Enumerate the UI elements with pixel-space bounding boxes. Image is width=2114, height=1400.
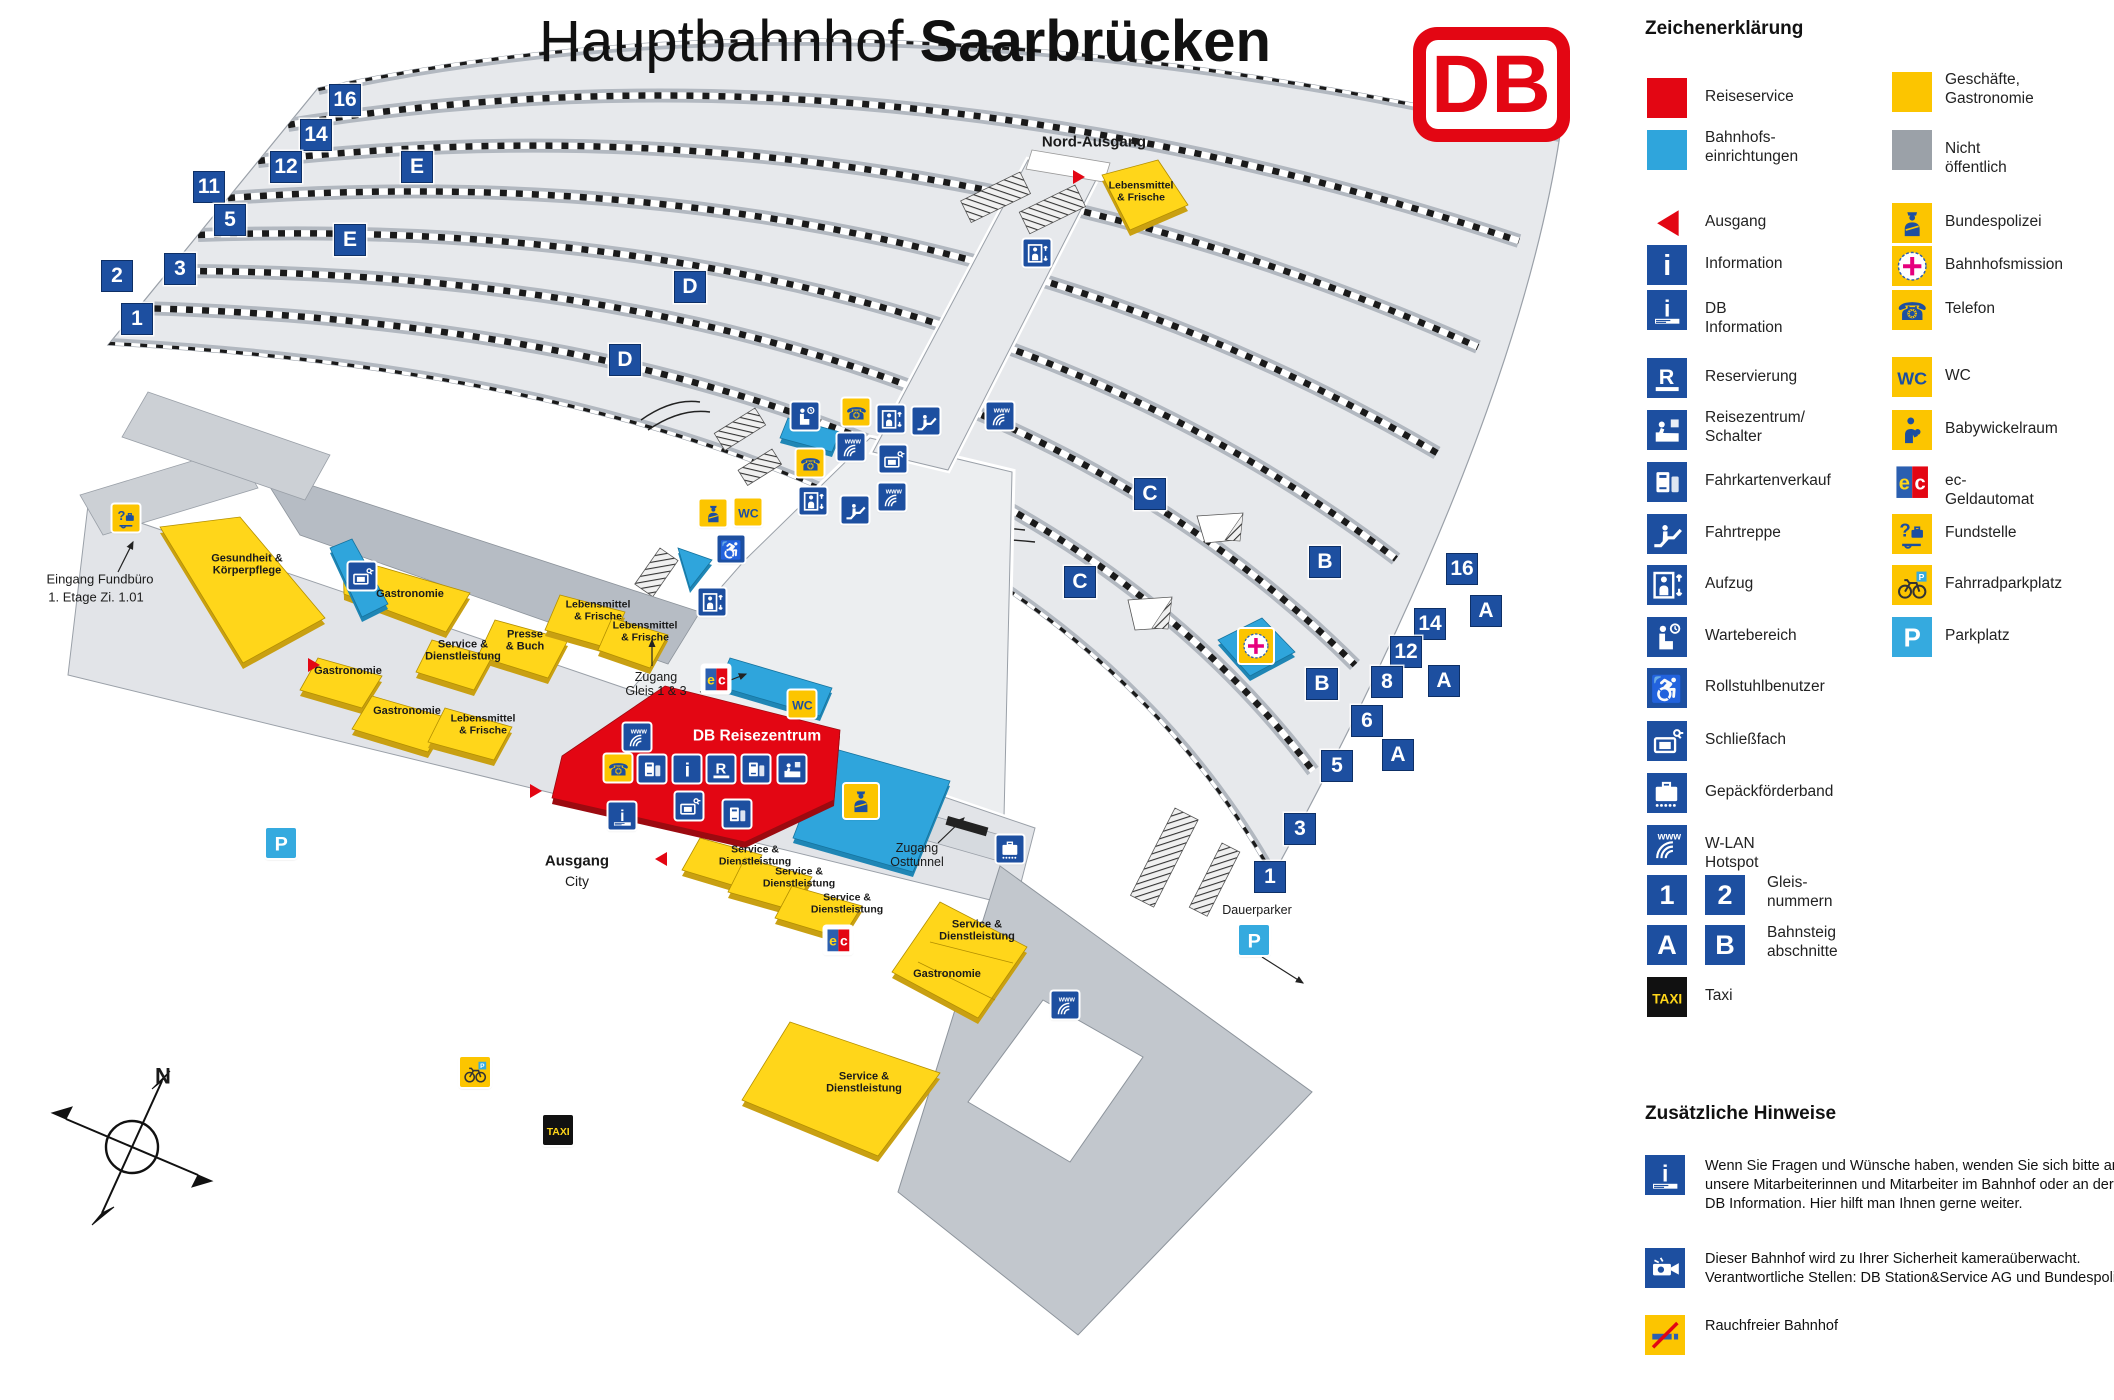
svg-text:☎: ☎ bbox=[1897, 299, 1927, 326]
page-title: Hauptbahnhof Saarbrücken bbox=[539, 8, 1271, 75]
gleis-badge-D: D bbox=[674, 271, 706, 303]
svg-text:☎: ☎ bbox=[846, 404, 867, 423]
legend-icon-taxi: TAXI bbox=[1647, 977, 1687, 1017]
wlan-icon: www bbox=[838, 434, 865, 461]
svg-text:☎: ☎ bbox=[800, 455, 821, 474]
legend-label: Bahnhofsmission bbox=[1945, 255, 2063, 274]
svg-text:c: c bbox=[1914, 472, 1925, 494]
legend-label: Fahrkartenverkauf bbox=[1705, 471, 1831, 490]
gleis-badge-1: 1 bbox=[121, 303, 153, 335]
aufzug-icon bbox=[1024, 240, 1051, 267]
information-icon: i bbox=[674, 756, 701, 783]
ausgang-arrow bbox=[655, 852, 667, 866]
note-text: Dieser Bahnhof wird zu Ihrer Sicherheit … bbox=[1705, 1250, 2114, 1288]
svg-text:c: c bbox=[840, 932, 848, 948]
gleis-badge-3: 3 bbox=[164, 253, 196, 285]
ec-icon: ec bbox=[703, 666, 730, 693]
legend-label: Bundespolizei bbox=[1945, 212, 2042, 231]
compass-rose bbox=[52, 1071, 212, 1225]
gleis-badge-E: E bbox=[334, 224, 366, 256]
map-label: Gastronomie bbox=[373, 705, 441, 717]
gleis-badge-16: 16 bbox=[329, 84, 361, 116]
svg-text:R: R bbox=[1659, 365, 1675, 389]
gleis-badge-8: 8 bbox=[1371, 666, 1403, 698]
aufzug-icon bbox=[699, 589, 726, 616]
svg-text:e: e bbox=[1899, 472, 1910, 494]
telefon-icon: ☎ bbox=[605, 755, 632, 782]
map-label: Service & Dienstleistung bbox=[939, 919, 1015, 944]
fahrtreppe-icon bbox=[913, 408, 940, 435]
svg-text:?: ? bbox=[117, 507, 125, 522]
svg-text:www: www bbox=[843, 438, 861, 445]
gleis-badge-6: 6 bbox=[1351, 705, 1383, 737]
svg-text:e: e bbox=[829, 932, 837, 948]
legend-icon-wlan: www bbox=[1647, 825, 1687, 865]
legend-icon-db-information: i bbox=[1647, 290, 1687, 330]
legend-label: Gleis- nummern bbox=[1767, 873, 1832, 912]
svg-text:i: i bbox=[1663, 250, 1671, 282]
gleis-badge-12: 12 bbox=[1390, 636, 1422, 668]
legend-label: Nicht öffentlich bbox=[1945, 139, 2007, 178]
gleis-badge-2: 2 bbox=[101, 260, 133, 292]
map-label: City bbox=[565, 874, 589, 890]
wlan-icon: www bbox=[1052, 992, 1079, 1019]
legend-icon-sq-reiseservice bbox=[1647, 78, 1687, 118]
gepaeck-icon bbox=[997, 836, 1024, 863]
map-label: N bbox=[155, 1065, 171, 1090]
map-label: Lebensmittel & Frische bbox=[613, 620, 678, 644]
legend-label: DB Information bbox=[1705, 299, 1783, 338]
legend-icon-wc: WC bbox=[1892, 357, 1932, 397]
schliessfach-icon bbox=[349, 563, 376, 590]
legend-badge-1: 1 bbox=[1647, 875, 1687, 915]
map-label: Zugang Osttunnel bbox=[890, 841, 944, 869]
svg-text:WC: WC bbox=[792, 698, 813, 712]
reisezentrum-icon bbox=[779, 756, 806, 783]
gleis-badge-A: A bbox=[1428, 665, 1460, 697]
notes-heading: Zusätzliche Hinweise bbox=[1645, 1103, 1836, 1125]
fahrkarten-icon bbox=[743, 756, 770, 783]
gleis-badge-5: 5 bbox=[1321, 750, 1353, 782]
note-icon-db-information: i bbox=[1645, 1155, 1685, 1195]
gleis-badge-3: 3 bbox=[1284, 813, 1316, 845]
map-label: Nord-Ausgang bbox=[1042, 135, 1146, 152]
svg-text:www: www bbox=[629, 728, 647, 735]
gleis-badge-C: C bbox=[1134, 478, 1166, 510]
svg-text:www: www bbox=[1656, 831, 1681, 842]
svg-text:TAXI: TAXI bbox=[1652, 991, 1682, 1006]
legend-label: Reiseservice bbox=[1705, 87, 1794, 106]
aufzug-icon bbox=[800, 488, 827, 515]
legend-label: ec-Geldautomat bbox=[1945, 471, 2034, 510]
map-label: Service & Dienstleistung bbox=[719, 844, 791, 868]
gleis-badge-B: B bbox=[1306, 668, 1338, 700]
legend-icon-ausgang bbox=[1647, 203, 1687, 243]
legend-label: Aufzug bbox=[1705, 574, 1753, 593]
wlan-icon: www bbox=[624, 724, 651, 751]
legend-badge-2: 2 bbox=[1705, 875, 1745, 915]
map-label: Service & Dienstleistung bbox=[763, 866, 835, 890]
svg-text:www: www bbox=[1057, 996, 1075, 1003]
map-label: Service & Dienstleistung bbox=[826, 1071, 902, 1096]
svg-text:P: P bbox=[1918, 572, 1924, 582]
bundespolizei-icon bbox=[700, 500, 727, 527]
legend-label: Fundstelle bbox=[1945, 523, 2017, 542]
fahrtreppe-icon bbox=[842, 497, 869, 524]
svg-text:c: c bbox=[718, 671, 726, 687]
legend-icon-rollstuhl: ♿ bbox=[1647, 668, 1687, 708]
reservierung-icon: R bbox=[708, 756, 735, 783]
gleis-badge-B: B bbox=[1309, 546, 1341, 578]
legend-icon-fahrtreppe bbox=[1647, 514, 1687, 554]
legend-icon-sq-geschaefte bbox=[1892, 72, 1932, 112]
legend-icon-bundespolizei bbox=[1892, 203, 1932, 243]
rollstuhl-icon: ♿ bbox=[718, 536, 745, 563]
note-icon-nosmoking bbox=[1645, 1315, 1685, 1355]
db-logo-text: DB bbox=[1426, 40, 1557, 129]
taxi-icon: TAXI bbox=[543, 1115, 573, 1145]
station-map-page: Hauptbahnhof Saarbrücken DB 161412E115E3… bbox=[0, 0, 2114, 1400]
gleis-badge-C: C bbox=[1064, 566, 1096, 598]
legend-label: Telefon bbox=[1945, 299, 1995, 318]
title-regular: Hauptbahnhof bbox=[539, 9, 920, 74]
escalator-east-1 bbox=[1131, 808, 1199, 907]
svg-text:WC: WC bbox=[738, 506, 759, 520]
ec-icon: ec bbox=[825, 927, 852, 954]
gleis-badge-12: 12 bbox=[270, 151, 302, 183]
legend-icon-fundstelle: ? bbox=[1892, 514, 1932, 554]
wc-icon: WC bbox=[789, 691, 816, 718]
legend-label: Schließfach bbox=[1705, 730, 1786, 749]
legend-badge-A: A bbox=[1647, 925, 1687, 965]
telefon-icon: ☎ bbox=[797, 450, 824, 477]
telefon-icon: ☎ bbox=[843, 399, 870, 426]
legend-label: Information bbox=[1705, 254, 1783, 273]
svg-text:?: ? bbox=[1899, 519, 1910, 540]
map-label: Presse & Buch bbox=[506, 629, 545, 654]
legend-badge-B: B bbox=[1705, 925, 1745, 965]
legend-label: Taxi bbox=[1705, 986, 1733, 1005]
legend-icon-schliessfach bbox=[1647, 721, 1687, 761]
svg-text:i: i bbox=[1664, 295, 1670, 321]
title-bold: Saarbrücken bbox=[920, 9, 1271, 74]
legend-icon-ec: ec bbox=[1892, 462, 1932, 502]
map-label: Gastronomie bbox=[314, 665, 382, 677]
svg-text:i: i bbox=[1662, 1160, 1668, 1186]
stairs-center-3 bbox=[635, 548, 678, 597]
legend-icon-sq-nicht bbox=[1892, 130, 1932, 170]
bundespolizei-icon bbox=[844, 784, 878, 818]
legend-label: Babywickelraum bbox=[1945, 419, 2058, 438]
map-label: 1. Etage Zi. 1.01 bbox=[48, 591, 143, 606]
wc-icon: WC bbox=[735, 499, 762, 526]
legend-icon-wartebereich bbox=[1647, 617, 1687, 657]
legend-label: Reservierung bbox=[1705, 367, 1797, 386]
legend-label: Ausgang bbox=[1705, 212, 1766, 231]
legend-label: WC bbox=[1945, 366, 1971, 385]
fahrkarten-icon bbox=[724, 801, 751, 828]
legend-icon-sq-einrichtungen bbox=[1647, 130, 1687, 170]
legend-icon-gepaeck bbox=[1647, 773, 1687, 813]
legend-label: Parkplatz bbox=[1945, 626, 2010, 645]
parkplatz-icon: P bbox=[266, 828, 296, 858]
map-label: Eingang Fundbüro bbox=[47, 573, 154, 588]
svg-text:WC: WC bbox=[1897, 368, 1927, 388]
aufzug-icon bbox=[878, 406, 905, 433]
svg-text:www: www bbox=[992, 407, 1010, 414]
legend-icon-telefon: ☎ bbox=[1892, 290, 1932, 330]
gleis-badge-5: 5 bbox=[214, 204, 246, 236]
svg-text:P: P bbox=[1247, 930, 1260, 952]
svg-text:www: www bbox=[884, 488, 902, 495]
svg-text:e: e bbox=[707, 671, 715, 687]
note-text: Wenn Sie Fragen und Wünsche haben, wende… bbox=[1705, 1157, 2114, 1214]
svg-text:♿: ♿ bbox=[1650, 674, 1684, 705]
svg-text:♿: ♿ bbox=[719, 538, 742, 560]
legend-icon-fahrkarten bbox=[1647, 462, 1687, 502]
legend-icon-bahnhofsmission bbox=[1892, 246, 1932, 286]
bahnhofsmission-icon bbox=[1239, 629, 1273, 663]
svg-text:P: P bbox=[274, 833, 287, 855]
map-label: Lebensmittel & Frische bbox=[1109, 180, 1174, 204]
fundstelle-icon: ? bbox=[113, 505, 140, 532]
schliessfach-icon bbox=[676, 793, 703, 820]
wlan-icon: www bbox=[879, 484, 906, 511]
svg-text:i: i bbox=[620, 807, 624, 824]
legend-icon-parkplatz: P bbox=[1892, 617, 1932, 657]
legend-label: Reisezentrum/ Schalter bbox=[1705, 408, 1805, 447]
svg-text:R: R bbox=[715, 761, 726, 777]
legend-label: W-LAN Hotspot bbox=[1705, 834, 1758, 873]
legend-label: Bahnhofs- einrichtungen bbox=[1705, 128, 1798, 167]
map-label: Gastronomie bbox=[913, 968, 981, 980]
fahrrad-icon: P bbox=[460, 1057, 490, 1087]
db-logo: DB bbox=[1413, 27, 1570, 142]
gleis-badge-11: 11 bbox=[193, 171, 225, 203]
legend-label: Rollstuhlbenutzer bbox=[1705, 677, 1825, 696]
schliessfach-icon bbox=[880, 446, 907, 473]
legend-heading: Zeichenerklärung bbox=[1645, 18, 1803, 40]
legend-icon-information: i bbox=[1647, 245, 1687, 285]
legend-icon-reisezentrum bbox=[1647, 410, 1687, 450]
map-label: Service & Dienstleistung bbox=[425, 639, 501, 664]
wartebereich-icon bbox=[792, 403, 819, 430]
parkplatz-icon: P bbox=[1239, 925, 1269, 955]
note-icon-camera bbox=[1645, 1248, 1685, 1288]
map-label: Ausgang bbox=[545, 854, 609, 871]
svg-text:i: i bbox=[684, 759, 690, 781]
legend-label: Geschäfte, Gastronomie bbox=[1945, 70, 2034, 109]
legend-icon-babywickel bbox=[1892, 410, 1932, 450]
gleis-badge-A: A bbox=[1382, 739, 1414, 771]
legend-icon-aufzug bbox=[1647, 565, 1687, 605]
fahrkarten-icon bbox=[639, 756, 666, 783]
svg-text:☎: ☎ bbox=[608, 760, 629, 779]
map-label: Service & Dienstleistung bbox=[811, 892, 883, 916]
gleis-badge-14: 14 bbox=[300, 119, 332, 151]
legend-label: Fahrtreppe bbox=[1705, 523, 1781, 542]
legend-icon-reservierung: R bbox=[1647, 358, 1687, 398]
gleis-badge-1: 1 bbox=[1254, 861, 1286, 893]
wlan-icon: www bbox=[987, 403, 1014, 430]
map-label: Gastronomie bbox=[376, 588, 444, 600]
legend-icon-fahrrad: P bbox=[1892, 565, 1932, 605]
map-label: DB Reisezentrum bbox=[693, 727, 821, 744]
legend-label: Gepäckförderband bbox=[1705, 782, 1833, 801]
map-label: Gesundheit & Körperpflege bbox=[211, 553, 283, 578]
map-label: Lebensmittel & Frische bbox=[451, 713, 516, 737]
gleis-badge-A: A bbox=[1470, 595, 1502, 627]
legend-label: Bahnsteig abschnitte bbox=[1767, 923, 1838, 962]
gleis-badge-E: E bbox=[401, 151, 433, 183]
note-text: Rauchfreier Bahnhof bbox=[1705, 1317, 2114, 1336]
map-label: Dauerparker bbox=[1222, 903, 1291, 917]
svg-text:P: P bbox=[1903, 624, 1920, 652]
gleis-badge-D: D bbox=[609, 344, 641, 376]
db-information-icon: i bbox=[609, 803, 636, 830]
legend-label: Fahrradparkplatz bbox=[1945, 574, 2062, 593]
svg-text:P: P bbox=[480, 1063, 485, 1070]
svg-text:TAXI: TAXI bbox=[546, 1127, 569, 1138]
map-label: Zugang Gleis 1 & 3 bbox=[625, 670, 686, 698]
legend-label: Wartebereich bbox=[1705, 626, 1797, 645]
gleis-badge-16: 16 bbox=[1446, 553, 1478, 585]
